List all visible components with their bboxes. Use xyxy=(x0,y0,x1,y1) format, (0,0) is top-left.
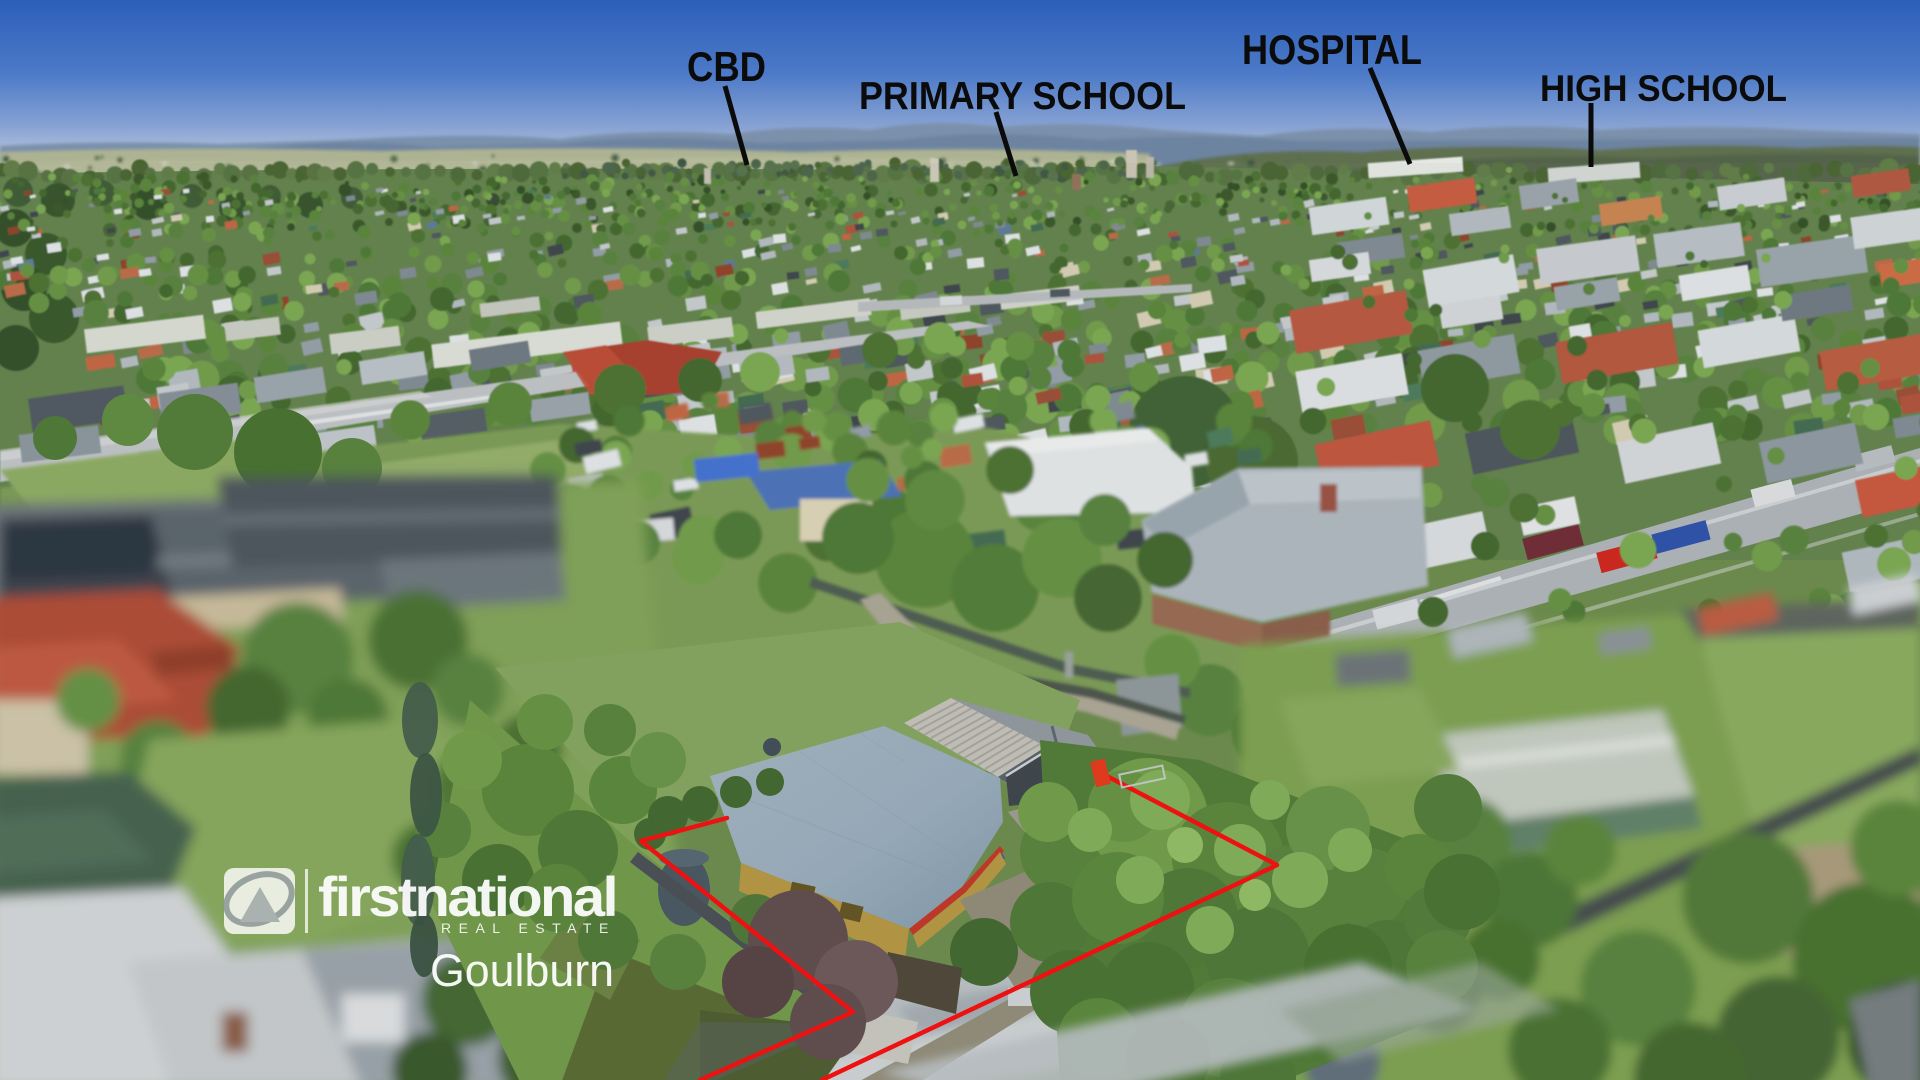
svg-text:Goulburn: Goulburn xyxy=(430,945,614,996)
svg-text:firstnational: firstnational xyxy=(318,865,616,928)
svg-text:PRIMARY SCHOOL: PRIMARY SCHOOL xyxy=(859,75,1186,118)
svg-text:REAL ESTATE: REAL ESTATE xyxy=(441,920,616,936)
svg-text:HOSPITAL: HOSPITAL xyxy=(1242,26,1422,73)
svg-text:CBD: CBD xyxy=(687,43,766,90)
svg-text:HIGH SCHOOL: HIGH SCHOOL xyxy=(1540,68,1787,109)
